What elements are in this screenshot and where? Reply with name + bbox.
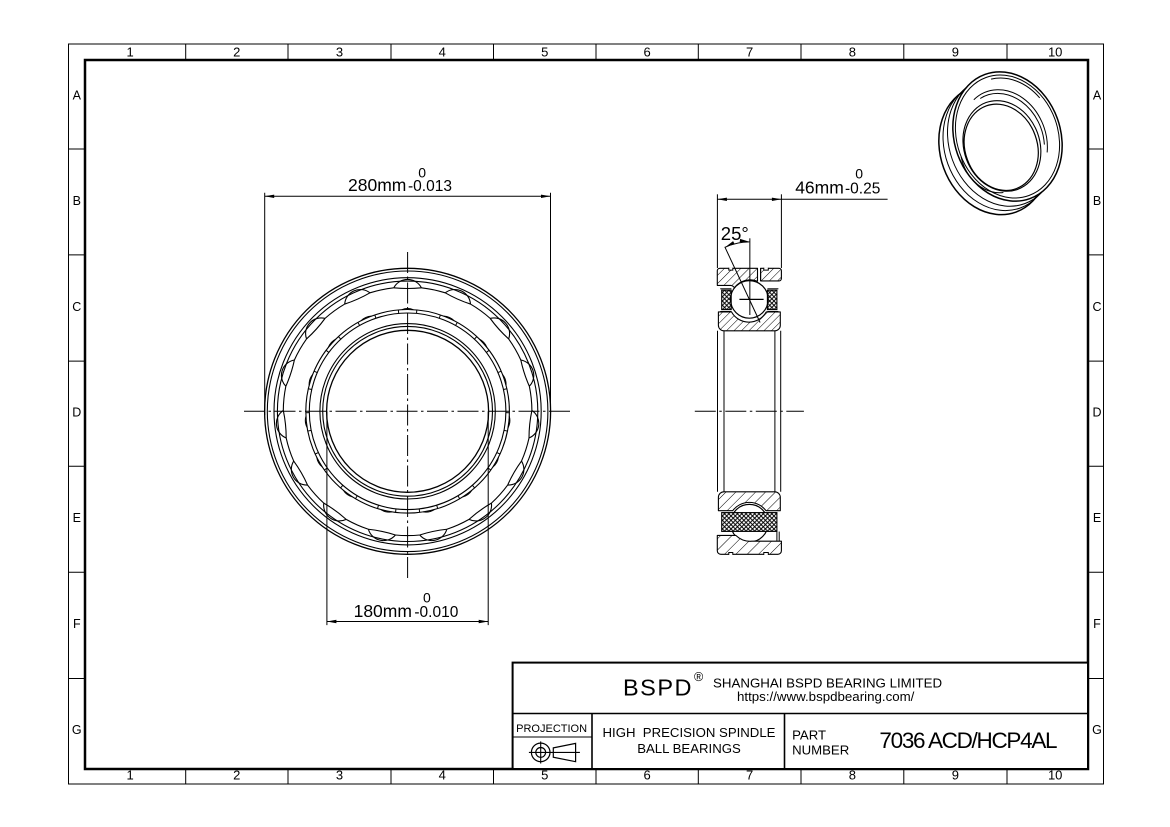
- svg-text:A: A: [73, 88, 82, 102]
- svg-text:D: D: [1092, 405, 1101, 419]
- svg-text:B: B: [73, 194, 81, 208]
- svg-text:4: 4: [439, 45, 446, 60]
- svg-text:F: F: [1093, 617, 1101, 631]
- svg-text:B: B: [1093, 194, 1101, 208]
- svg-text:E: E: [1093, 511, 1101, 525]
- svg-text:PART: PART: [792, 728, 826, 743]
- svg-text:3: 3: [336, 768, 343, 783]
- svg-text:-0.010: -0.010: [414, 604, 458, 621]
- svg-text:0: 0: [418, 164, 426, 180]
- svg-text:https://www.bspdbearing.com/: https://www.bspdbearing.com/: [737, 689, 915, 704]
- svg-text:0: 0: [423, 590, 431, 606]
- svg-text:A: A: [1093, 88, 1102, 102]
- svg-text:G: G: [72, 723, 82, 737]
- svg-text:10: 10: [1048, 45, 1062, 60]
- svg-text:E: E: [73, 511, 81, 525]
- svg-text:1: 1: [126, 45, 133, 60]
- svg-text:1: 1: [126, 768, 133, 783]
- svg-text:-0.25: -0.25: [845, 180, 880, 197]
- svg-text:HIGH PRECISION SPINDLE: HIGH PRECISION SPINDLE: [603, 725, 776, 740]
- svg-text:0: 0: [855, 166, 863, 182]
- svg-text:D: D: [72, 405, 81, 419]
- svg-text:3: 3: [336, 45, 343, 60]
- svg-text:C: C: [72, 300, 81, 314]
- svg-text:5: 5: [541, 45, 548, 60]
- svg-text:4: 4: [439, 768, 446, 783]
- svg-text:9: 9: [952, 45, 959, 60]
- svg-text:NUMBER: NUMBER: [792, 742, 849, 757]
- svg-text:G: G: [1092, 723, 1102, 737]
- svg-text:2: 2: [233, 45, 240, 60]
- svg-text:2: 2: [233, 768, 240, 783]
- svg-text:BSPD: BSPD: [623, 675, 693, 701]
- svg-text:BALL BEARINGS: BALL BEARINGS: [637, 741, 741, 756]
- svg-text:180mm: 180mm: [354, 601, 412, 621]
- svg-text:25°: 25°: [721, 223, 749, 244]
- svg-text:8: 8: [849, 45, 856, 60]
- svg-text:7: 7: [746, 45, 753, 60]
- svg-text:7036 ACD/HCP4AL: 7036 ACD/HCP4AL: [879, 728, 1057, 753]
- svg-text:280mm: 280mm: [348, 175, 406, 195]
- svg-text:C: C: [1092, 300, 1101, 314]
- svg-text:®: ®: [694, 670, 704, 684]
- svg-text:-0.013: -0.013: [408, 178, 452, 195]
- svg-text:F: F: [73, 617, 81, 631]
- svg-text:46mm: 46mm: [795, 177, 844, 197]
- svg-text:PROJECTION: PROJECTION: [516, 723, 587, 735]
- svg-text:6: 6: [643, 45, 650, 60]
